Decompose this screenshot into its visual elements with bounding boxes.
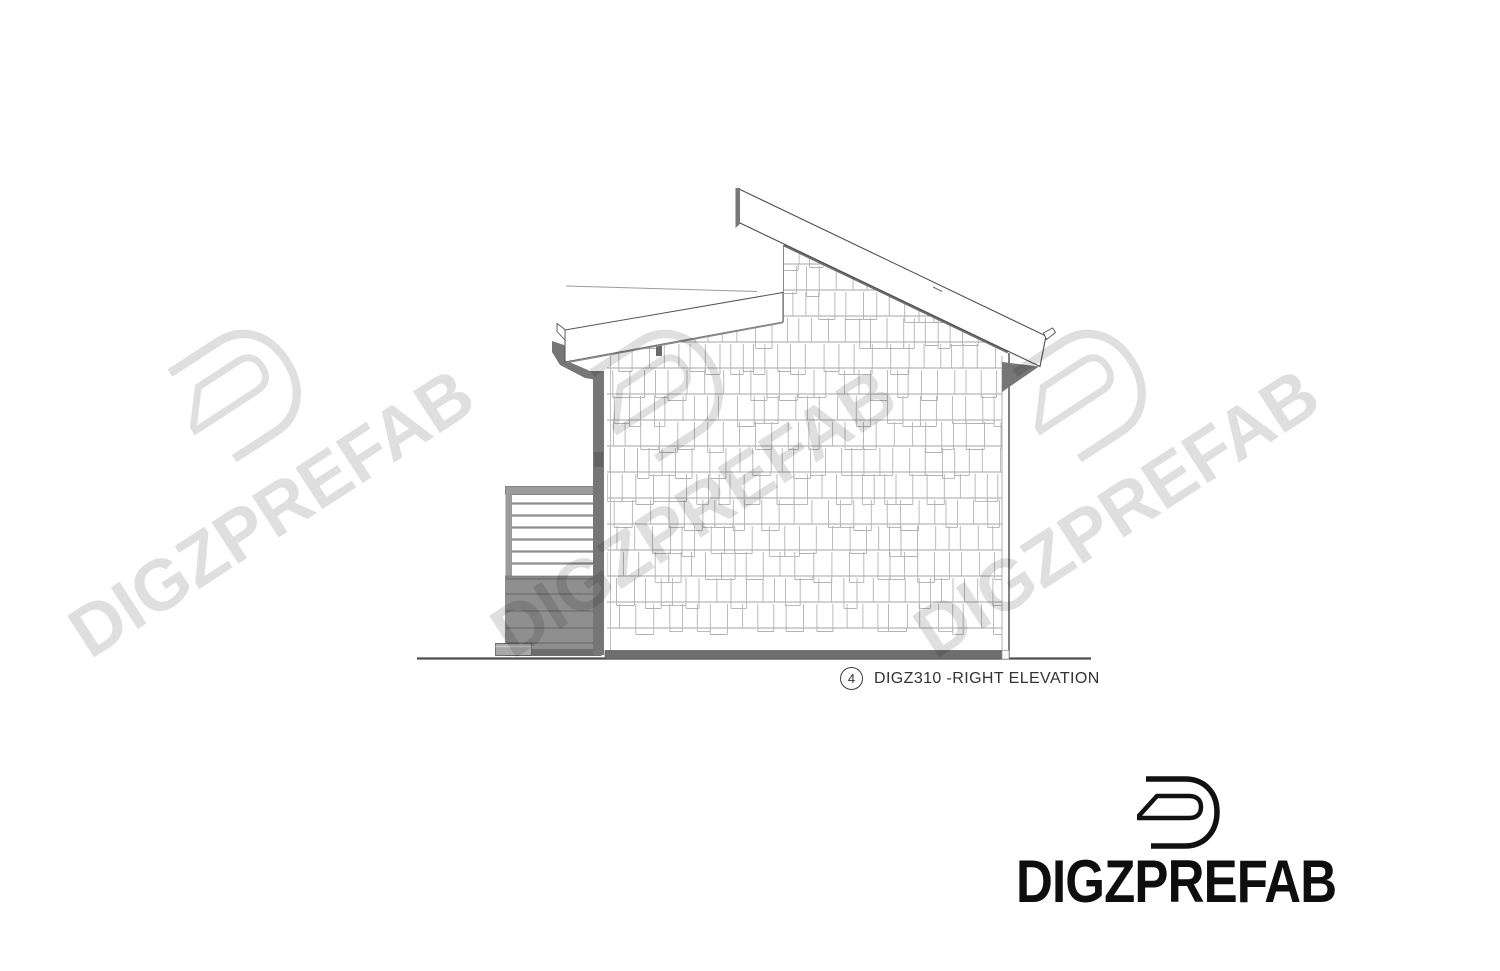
deck-skirt: [506, 576, 602, 653]
entry-step: [496, 644, 532, 656]
lower-roof-surface-edge: [566, 286, 757, 292]
downspout: [593, 371, 604, 655]
deck-guardrail-top-rail: [506, 487, 602, 495]
upper-roof-end-lip: [1044, 328, 1056, 340]
corner-board-right: [1002, 353, 1009, 653]
brand-wordmark: DIGZPREFAB: [1016, 852, 1336, 912]
caption-number: 4: [848, 671, 855, 686]
soffit-shadow: [1002, 362, 1039, 392]
downspout-bracket: [594, 452, 603, 467]
sheet-canvas: DIGZPREFAB DIGZPREFAB DIGZPREFAB 4 DIGZ3…: [0, 0, 1500, 971]
wall-base-trim: [605, 651, 1002, 660]
elevation-drawing: [0, 0, 1500, 971]
caption-number-bubble: 4: [840, 667, 863, 690]
deck-guardrail-post: [506, 494, 513, 577]
wall-base-end-cap: [1002, 651, 1009, 660]
deck-guardrail-slats: [512, 504, 593, 564]
brand-d-logo-icon: [1137, 776, 1229, 850]
upper-roof-fascia-left-edge: [736, 188, 741, 228]
caption-label: DIGZ310 -RIGHT ELEVATION: [874, 670, 1100, 688]
lower-roof-end-lip: [557, 324, 565, 341]
drawing-caption: 4 DIGZ310 -RIGHT ELEVATION: [840, 667, 1100, 690]
